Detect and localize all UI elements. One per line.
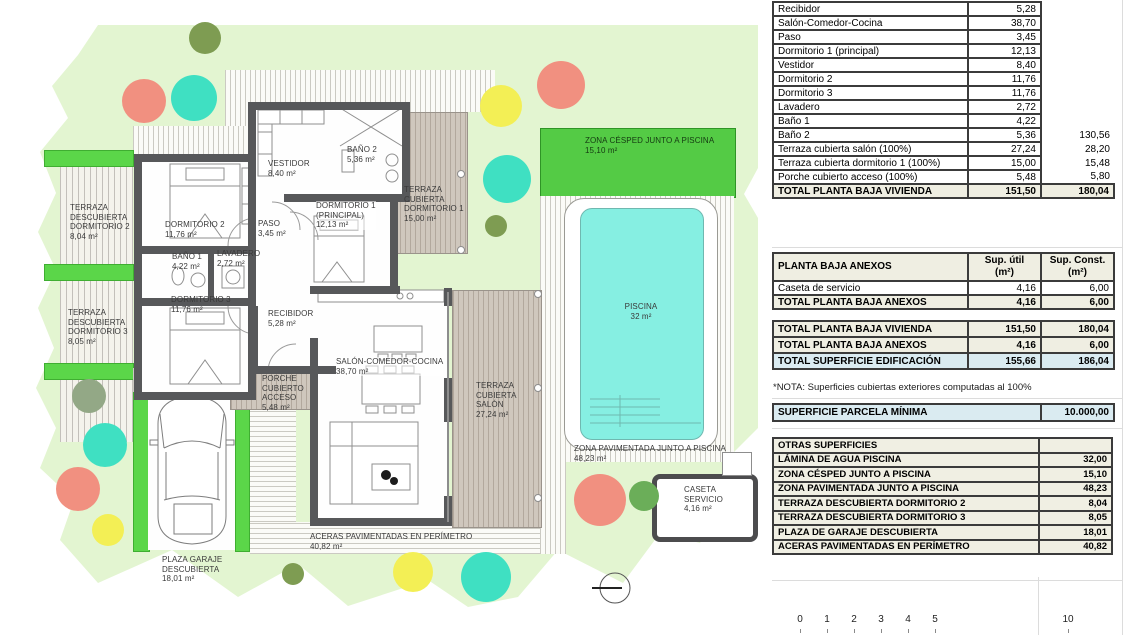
cell-total-util: 4,16 [968, 295, 1041, 309]
caseta-annex-box [722, 452, 752, 476]
label-caseta: CASETA SERVICIO 4,16 m² [684, 485, 723, 514]
tree-icon [83, 423, 127, 467]
cell-sup-util: 8,40 [968, 58, 1041, 72]
table-row: Terraza cubierta dormitorio 1 (100%)15,0… [773, 156, 1114, 170]
label-dormitorio-3: DORMITORIO 3 11,76 m² [171, 295, 231, 314]
cell-room-name: Salón-Comedor-Cocina [773, 16, 968, 30]
tree-icon [171, 75, 217, 121]
table-row: Lavadero2,72 [773, 100, 1114, 114]
cell-total-const: 6,00 [1041, 295, 1114, 309]
cell-sup-const [1041, 114, 1114, 128]
cell-sup-const [1041, 86, 1114, 100]
wall [310, 286, 400, 294]
cell-total-const: 180,04 [1041, 184, 1114, 198]
cell-header-name: OTRAS SUPERFICIES [773, 438, 1039, 453]
gridline [772, 247, 1122, 248]
table-row: Dormitorio 211,76 [773, 72, 1114, 86]
cell-surface-value: 48,23 [1039, 482, 1112, 497]
table-row: Paso3,45 [773, 30, 1114, 44]
wall [134, 154, 256, 162]
table-row: Dormitorio 311,76 [773, 86, 1114, 100]
cell-sup-util: 38,70 [968, 16, 1041, 30]
cell-total-label: TOTAL PLANTA BAJA VIVIENDA [773, 184, 968, 198]
north-symbol [592, 573, 630, 603]
cell-sup-const [1041, 58, 1114, 72]
table-row: Dormitorio 1 (principal)12,13 [773, 44, 1114, 58]
cell-surface-name: LÁMINA DE AGUA PISCINA [773, 453, 1039, 468]
cell-total-const: 186,04 [1041, 353, 1114, 369]
cell-sup-util: 2,72 [968, 100, 1041, 114]
cell-room-name: Terraza cubierta salón (100%) [773, 142, 968, 156]
car-top-view [150, 396, 234, 544]
table-row-total: TOTAL PLANTA BAJA ANEXOS4,166,00 [773, 295, 1114, 309]
table-row: PLAZA DE GARAJE DESCUBIERTA18,01 [773, 525, 1112, 540]
tree-icon [480, 85, 522, 127]
cell-total-util: 151,50 [968, 321, 1041, 337]
wall [310, 518, 450, 526]
cell-surface-value: 18,01 [1039, 525, 1112, 540]
table-row-total: TOTAL PLANTA BAJA VIVIENDA151,50180,04 [773, 184, 1114, 198]
cell-total-label: TOTAL PLANTA BAJA ANEXOS [773, 337, 968, 353]
label-zona-cesped: ZONA CÉSPED JUNTO A PISCINA 15,10 m² [585, 136, 714, 155]
table-row: Recibidor5,28 [773, 2, 1114, 16]
tree-icon [282, 563, 304, 585]
cell-room-name: Dormitorio 1 (principal) [773, 44, 968, 58]
cell-sup-util: 5,36 [968, 128, 1041, 142]
cell-total-label: TOTAL PLANTA BAJA ANEXOS [773, 295, 968, 309]
table-row: ZONA CÉSPED JUNTO A PISCINA15,10 [773, 467, 1112, 482]
cell-surface-name: ZONA PAVIMENTADA JUNTO A PISCINA [773, 482, 1039, 497]
label-terraza-cubierta-dorm1: TERRAZA CUBIERTA DORMITORIO 1 15,00 m² [404, 185, 464, 223]
glass-wall [447, 292, 449, 522]
table-otras-superficies: OTRAS SUPERFICIES LÁMINA DE AGUA PISCINA… [772, 437, 1113, 555]
label-bano-1: BAÑO 1 4,22 m² [172, 252, 202, 271]
gridline [772, 428, 1122, 429]
tree-icon [485, 215, 507, 237]
gridline [1122, 0, 1123, 635]
scale-tick-mark [1068, 629, 1069, 633]
cell-surface-name: ACERAS PAVIMENTADAS EN PERÍMETRO [773, 540, 1039, 555]
label-lavadero: LAVADERO 2,72 m² [217, 249, 260, 268]
cell-room-name: Lavadero [773, 100, 968, 114]
cell-room-name: Recibidor [773, 2, 968, 16]
label-zona-pavimentada: ZONA PAVIMENTADA JUNTO A PISCINA 48,23 m… [574, 444, 726, 463]
cell-surface-name: TERRAZA DESCUBIERTA DORMITORIO 2 [773, 496, 1039, 511]
cell-header-const: Sup. Const. (m²) [1041, 253, 1114, 281]
cell-header-value [1039, 438, 1112, 453]
table-header-row: OTRAS SUPERFICIES [773, 438, 1112, 453]
cell-sup-const [1041, 44, 1114, 58]
scale-tick-label: 4 [900, 614, 916, 625]
label-plaza-garaje: PLAZA GARAJE DESCUBIERTA 18,01 m² [162, 555, 222, 584]
table-row: LÁMINA DE AGUA PISCINA32,00 [773, 453, 1112, 468]
scale-tick-mark [908, 629, 909, 633]
cell-surface-value: 32,00 [1039, 453, 1112, 468]
cell-parcela-label: SUPERFICIE PARCELA MÍNIMA [773, 404, 1041, 421]
label-salon: SALÓN-COMEDOR-COCINA 38,70 m² [336, 357, 443, 376]
cell-sup-util: 15,00 [968, 156, 1041, 170]
table-row: Terraza cubierta salón (100%)27,2428,20 [773, 142, 1114, 156]
gridline [1038, 577, 1039, 635]
cell-room-name: Terraza cubierta dormitorio 1 (100%) [773, 156, 968, 170]
cell-total-label: TOTAL PLANTA BAJA VIVIENDA [773, 321, 968, 337]
label-terraza-descubierta-dorm2: TERRAZA DESCUBIERTA DORMITORIO 2 8,04 m² [70, 203, 130, 241]
cell-sup-const [1041, 16, 1114, 30]
cell-total-const: 6,00 [1041, 337, 1114, 353]
pool-steps [590, 395, 701, 427]
scale-tick-label: 1 [819, 614, 835, 625]
scale-tick-mark [827, 629, 828, 633]
scale-tick-mark [800, 629, 801, 633]
cell-sup-const: 130,56 [1041, 128, 1114, 142]
label-porche: PORCHE CUBIERTO ACCESO 5,48 m² [262, 374, 304, 412]
scale-tick-mark [935, 629, 936, 633]
cell-parcela-value: 10.000,00 [1041, 404, 1114, 421]
cell-room-name: Vestidor [773, 58, 968, 72]
tree-icon [461, 552, 511, 602]
cell-total-const: 180,04 [1041, 321, 1114, 337]
cell-room-name: Baño 2 [773, 128, 968, 142]
wall [134, 392, 256, 400]
label-aceras: ACERAS PAVIMENTADAS EN PERÍMETRO 40,82 m… [310, 532, 472, 551]
table-row-parcela: SUPERFICIE PARCELA MÍNIMA10.000,00 [773, 404, 1114, 421]
gridline [772, 398, 1122, 399]
cell-room-name: Caseta de servicio [773, 281, 968, 295]
label-vestidor: VESTIDOR 8,40 m² [268, 159, 310, 178]
cell-total-util: 4,16 [968, 337, 1041, 353]
cell-room-name: Porche cubierto acceso (100%) [773, 170, 968, 184]
table-resumen-totales: TOTAL PLANTA BAJA VIVIENDA151,50180,04 T… [772, 320, 1115, 370]
scale-tick-label: 5 [927, 614, 943, 625]
table-row-total: TOTAL PLANTA BAJA VIVIENDA151,50180,04 [773, 321, 1114, 337]
cell-surface-name: PLAZA DE GARAJE DESCUBIERTA [773, 525, 1039, 540]
sofa [330, 422, 418, 504]
table-row: Baño 25,36130,56 [773, 128, 1114, 142]
label-dormitorio-1: DORMITORIO 1 (PRINCIPAL) 12,13 m² [316, 201, 376, 230]
cell-surface-name: TERRAZA DESCUBIERTA DORMITORIO 3 [773, 511, 1039, 526]
label-recibidor: RECIBIDOR 5,28 m² [268, 309, 313, 328]
cell-sup-const [1041, 30, 1114, 44]
cell-sup-util: 5,48 [968, 170, 1041, 184]
cell-sup-const [1041, 72, 1114, 86]
bed-dorm3 [170, 308, 240, 384]
label-dormitorio-2: DORMITORIO 2 11,76 m² [165, 220, 225, 239]
cell-total-util: 155,66 [968, 353, 1041, 369]
cell-room-name: Dormitorio 3 [773, 86, 968, 100]
cell-sup-const: 15,48 [1041, 156, 1114, 170]
wall [134, 154, 142, 400]
cell-room-name: Paso [773, 30, 968, 44]
cell-sup-util: 27,24 [968, 142, 1041, 156]
cell-sup-util: 4,16 [968, 281, 1041, 295]
table-row: ZONA PAVIMENTADA JUNTO A PISCINA48,23 [773, 482, 1112, 497]
note-text: *NOTA: Superficies cubiertas exteriores … [773, 382, 1032, 393]
wall [248, 306, 256, 400]
scale-tick-mark [854, 629, 855, 633]
tree-icon [122, 79, 166, 123]
kitchen-counter [318, 290, 444, 360]
cell-surface-value: 15,10 [1039, 467, 1112, 482]
table-row: TERRAZA DESCUBIERTA DORMITORIO 28,04 [773, 496, 1112, 511]
cell-surface-name: ZONA CÉSPED JUNTO A PISCINA [773, 467, 1039, 482]
tree-icon [574, 474, 626, 526]
label-piscina: PISCINA 32 m² [613, 302, 669, 321]
cell-header-name: PLANTA BAJA ANEXOS [773, 253, 968, 281]
table-superficie-parcela: SUPERFICIE PARCELA MÍNIMA10.000,00 [772, 403, 1115, 422]
cell-sup-util: 11,76 [968, 72, 1041, 86]
cell-surface-value: 40,82 [1039, 540, 1112, 555]
label-terraza-descubierta-dorm3: TERRAZA DESCUBIERTA DORMITORIO 3 8,05 m² [68, 308, 128, 346]
cell-sup-const: 6,00 [1041, 281, 1114, 295]
tree-icon [56, 467, 100, 511]
cell-sup-util: 12,13 [968, 44, 1041, 58]
cell-sup-util: 11,76 [968, 86, 1041, 100]
tree-icon [629, 481, 659, 511]
table-header-row: PLANTA BAJA ANEXOSSup. útil (m²)Sup. Con… [773, 253, 1114, 281]
wall [390, 202, 398, 294]
tree-icon [72, 379, 106, 413]
tree-icon [393, 552, 433, 592]
scale-tick-label: 3 [873, 614, 889, 625]
table-row: TERRAZA DESCUBIERTA DORMITORIO 38,05 [773, 511, 1112, 526]
cell-sup-const [1041, 2, 1114, 16]
cell-total-label: TOTAL SUPERFICIE EDIFICACIÓN [773, 353, 968, 369]
cell-room-name: Baño 1 [773, 114, 968, 128]
cell-sup-util: 3,45 [968, 30, 1041, 44]
site-plan-sheet: TERRAZA DESCUBIERTA DORMITORIO 2 8,04 m²… [0, 0, 1130, 635]
table-planta-baja-anexos: PLANTA BAJA ANEXOSSup. útil (m²)Sup. Con… [772, 252, 1115, 310]
cell-surface-value: 8,04 [1039, 496, 1112, 511]
label-paso: PASO 3,45 m² [258, 219, 286, 238]
cell-header-util: Sup. útil (m²) [968, 253, 1041, 281]
lavadero-fixtures [222, 266, 244, 288]
table-planta-baja-vivienda: Recibidor5,28 Salón-Comedor-Cocina38,70 … [772, 1, 1115, 199]
tree-icon [92, 514, 124, 546]
tree-icon [189, 22, 221, 54]
cell-sup-const: 5,80 [1041, 170, 1114, 184]
cell-total-util: 151,50 [968, 184, 1041, 198]
wall [248, 102, 410, 110]
cell-sup-util: 5,28 [968, 2, 1041, 16]
table-row: Vestidor8,40 [773, 58, 1114, 72]
tree-icon [537, 61, 585, 109]
table-row: Caseta de servicio4,166,00 [773, 281, 1114, 295]
table-row-grand-total: TOTAL SUPERFICIE EDIFICACIÓN155,66186,04 [773, 353, 1114, 369]
scale-tick-label: 0 [792, 614, 808, 625]
scale-tick-label: 10 [1060, 614, 1076, 625]
cell-sup-const: 28,20 [1041, 142, 1114, 156]
cell-surface-value: 8,05 [1039, 511, 1112, 526]
table-row-total: TOTAL PLANTA BAJA ANEXOS4,166,00 [773, 337, 1114, 353]
wall [248, 102, 256, 248]
label-bano-2: BAÑO 2 5,36 m² [347, 145, 377, 164]
cell-sup-const [1041, 100, 1114, 114]
tree-icon [483, 155, 531, 203]
cell-sup-util: 4,22 [968, 114, 1041, 128]
scale-tick-label: 2 [846, 614, 862, 625]
table-row: Baño 14,22 [773, 114, 1114, 128]
wall [250, 366, 336, 374]
wall [208, 250, 214, 298]
label-terraza-cubierta-salon: TERRAZA CUBIERTA SALÓN 27,24 m² [476, 381, 517, 419]
scale-tick-mark [881, 629, 882, 633]
table-row: Salón-Comedor-Cocina38,70 [773, 16, 1114, 30]
gridline [772, 580, 1122, 581]
table-row: ACERAS PAVIMENTADAS EN PERÍMETRO40,82 [773, 540, 1112, 555]
cell-room-name: Dormitorio 2 [773, 72, 968, 86]
table-row: Porche cubierto acceso (100%)5,485,80 [773, 170, 1114, 184]
